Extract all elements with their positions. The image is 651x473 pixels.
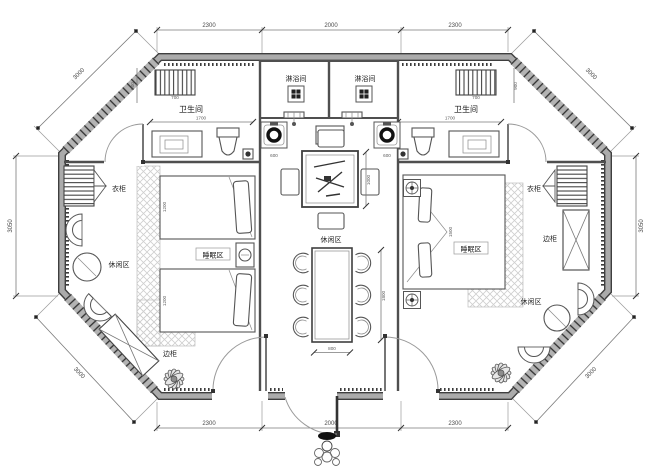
- dim-top-mid: 2000: [324, 23, 338, 29]
- dim-bed-right: 1500: [448, 226, 453, 237]
- cushion-icon: [404, 292, 421, 309]
- dim-basin-left: 600: [270, 153, 278, 158]
- cushion-icon: [404, 180, 421, 197]
- label-bath-left: 卫生间: [179, 104, 203, 114]
- bed-icon-1: [160, 176, 255, 239]
- label-leisure-right: 休闲区: [521, 297, 542, 306]
- nightstand-icon: [236, 243, 254, 267]
- floor-plan-canvas: 2300 2000 2300 2300 2000 2300 3050 3050 …: [0, 0, 651, 473]
- chair-north: [318, 130, 344, 147]
- washbasin-icon-left: [261, 122, 287, 148]
- dim-basin-right: 600: [383, 153, 391, 158]
- label-sleep-left: 睡眠区: [203, 252, 224, 260]
- dim-bottom-left: 2300: [202, 421, 216, 427]
- floor-drain-icon: [356, 86, 372, 102]
- dim-bath-left: 1700: [196, 116, 207, 121]
- side-cabinet-icon: [563, 210, 589, 270]
- label-shower-right: 淋浴间: [355, 74, 376, 83]
- washbasin-icon-right: [374, 122, 400, 148]
- dim-bath-right: 1700: [445, 116, 456, 121]
- chair-south: [318, 213, 344, 229]
- radiator-shelf-icon: [155, 70, 195, 95]
- label-shower-left: 淋浴间: [286, 74, 307, 83]
- label-leisure-center: 休闲区: [321, 235, 342, 244]
- dining-table-icon: [312, 248, 352, 342]
- dim-bath-height-left: 900: [130, 82, 135, 90]
- chair-west: [281, 169, 299, 195]
- dim-radiator-left: 700: [171, 95, 179, 100]
- dim-top-left: 2300: [202, 23, 216, 29]
- vanity-icon: [152, 131, 202, 157]
- dim-bottom-right: 2300: [448, 421, 462, 427]
- label-bath-right: 卫生间: [454, 104, 478, 114]
- dim-radiator-right: 700: [472, 95, 480, 100]
- bed-icon-2: [160, 269, 255, 332]
- label-wardrobe-left: 衣柜: [112, 184, 126, 193]
- dim-tea-table: 1000: [366, 174, 371, 185]
- dim-bed2: 1200: [162, 295, 167, 306]
- label-wardrobe-right: 衣柜: [527, 184, 541, 193]
- radiator-shelf-icon: [456, 70, 496, 95]
- label-sleep-right: 睡眠区: [461, 246, 482, 254]
- dim-dining-length: 1800: [381, 290, 386, 301]
- dim-dining-width: 800: [328, 346, 336, 351]
- dim-bed1: 1200: [162, 201, 167, 212]
- dim-bath-height-right: 900: [513, 82, 518, 90]
- floor-drain-icon: [288, 86, 304, 102]
- floor-plan: 2300 2000 2300 2300 2000 2300 3050 3050 …: [0, 0, 651, 473]
- label-side-cabinet-right: 边柜: [543, 234, 557, 243]
- label-leisure-left: 休闲区: [109, 260, 130, 269]
- dim-top-right: 2300: [448, 23, 462, 29]
- dim-right: 3050: [639, 219, 645, 233]
- dim-left: 3050: [8, 219, 14, 233]
- vanity-icon: [449, 131, 499, 157]
- label-side-cabinet-left: 边柜: [163, 349, 177, 358]
